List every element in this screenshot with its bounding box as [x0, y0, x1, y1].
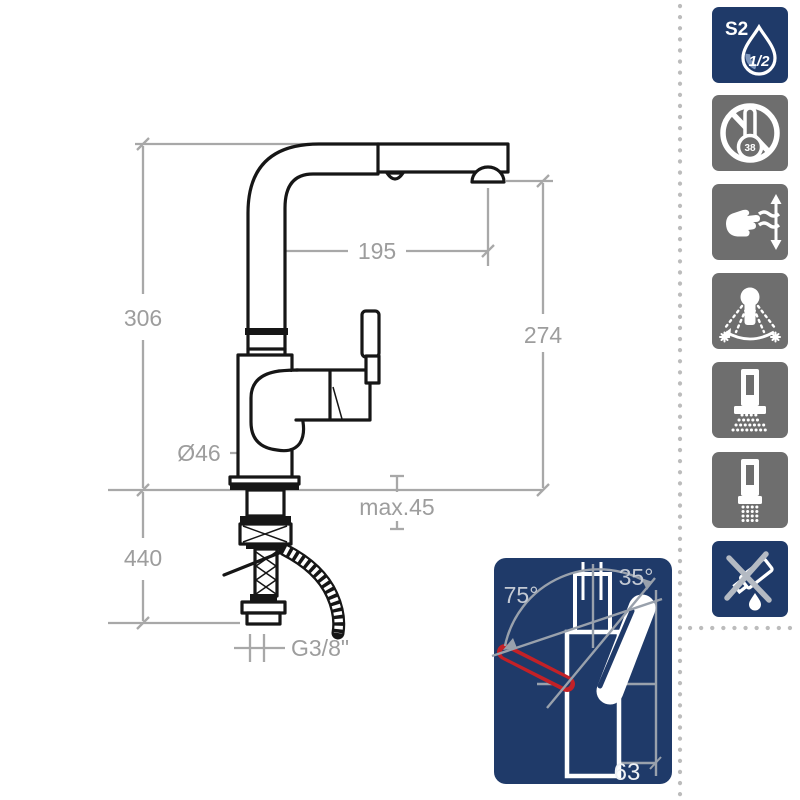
base-flange — [230, 477, 299, 484]
laminar-jet-icon — [712, 452, 788, 528]
s2-label: S2 — [725, 19, 748, 40]
dim-195-label: 195 — [358, 238, 396, 264]
straight-stream-dots — [743, 507, 757, 521]
thermometer-38-label: 38 — [744, 143, 756, 154]
faucet-datasheet: 306 195 274 Ø46 max.45 440 G3/8" — [0, 0, 800, 800]
spray-outlet-dome — [472, 167, 504, 182]
shower-jet-icon — [712, 362, 788, 438]
faucet-outline — [224, 144, 508, 633]
dim-diameter-label: Ø46 — [177, 440, 220, 466]
swivel-collar — [245, 328, 288, 335]
swivel-spray-icon — [712, 273, 788, 349]
inset-63-label: 63 — [614, 759, 641, 786]
dim-306-label: 306 — [124, 305, 162, 331]
dim-274-label: 274 — [524, 322, 563, 348]
handle-lever — [362, 311, 379, 357]
wide-spray-dots — [733, 415, 767, 430]
connector-nut — [242, 602, 285, 613]
hose-clip-bump — [387, 173, 403, 179]
no-thermostat-38-icon: 38 — [712, 95, 788, 171]
swivel-inset-panel: 75° 35° 63 — [492, 558, 672, 786]
dim-440-label: 440 — [124, 545, 162, 571]
drip-icon — [749, 593, 761, 611]
flow-class-icon: S2 1/2 — [712, 7, 788, 83]
no-harsh-cleaners-icon — [712, 541, 788, 617]
dim-max45-label: max.45 — [359, 494, 434, 520]
mounting-shank — [247, 490, 284, 516]
inset-right-angle-label: 35° — [619, 564, 654, 590]
technical-drawing: 306 195 274 Ø46 max.45 440 G3/8" — [0, 0, 800, 800]
swivel-arc-icon — [726, 332, 774, 339]
half-flow-label: 1/2 — [749, 53, 771, 70]
spray-mode-star-icon — [720, 333, 729, 342]
handle-lever-base — [366, 356, 379, 383]
inset-left-angle-label: 75° — [504, 582, 539, 608]
hand-icon — [726, 210, 760, 237]
supply-connector — [247, 613, 280, 624]
pull-out-spray-icon — [712, 184, 788, 260]
spray-mode-star-icon — [771, 333, 780, 342]
